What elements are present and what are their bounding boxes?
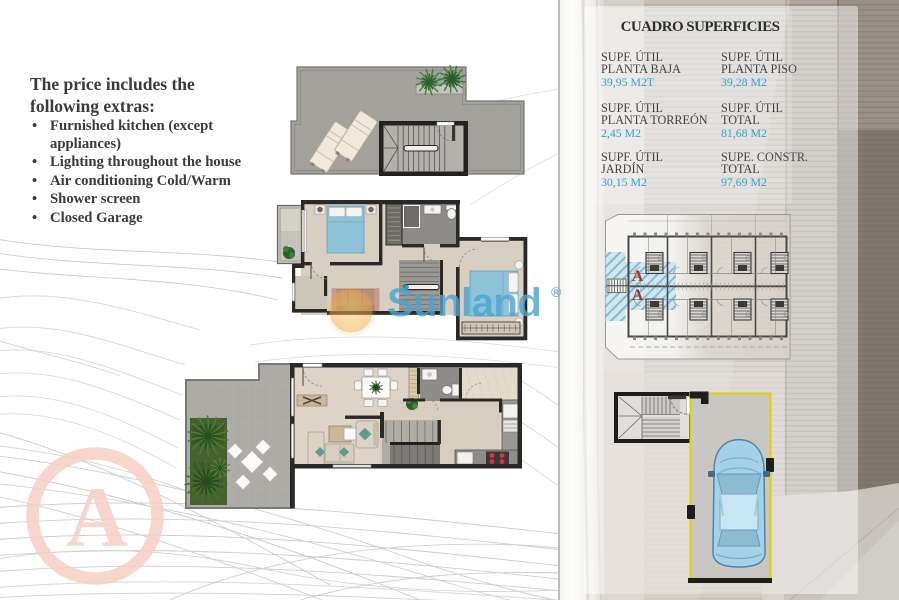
svg-text:A: A — [632, 268, 644, 285]
svg-text:Sunland: Sunland — [387, 281, 541, 325]
svg-text:A: A — [632, 287, 644, 304]
svg-text:®: ® — [551, 284, 562, 300]
svg-text:A: A — [66, 469, 128, 565]
